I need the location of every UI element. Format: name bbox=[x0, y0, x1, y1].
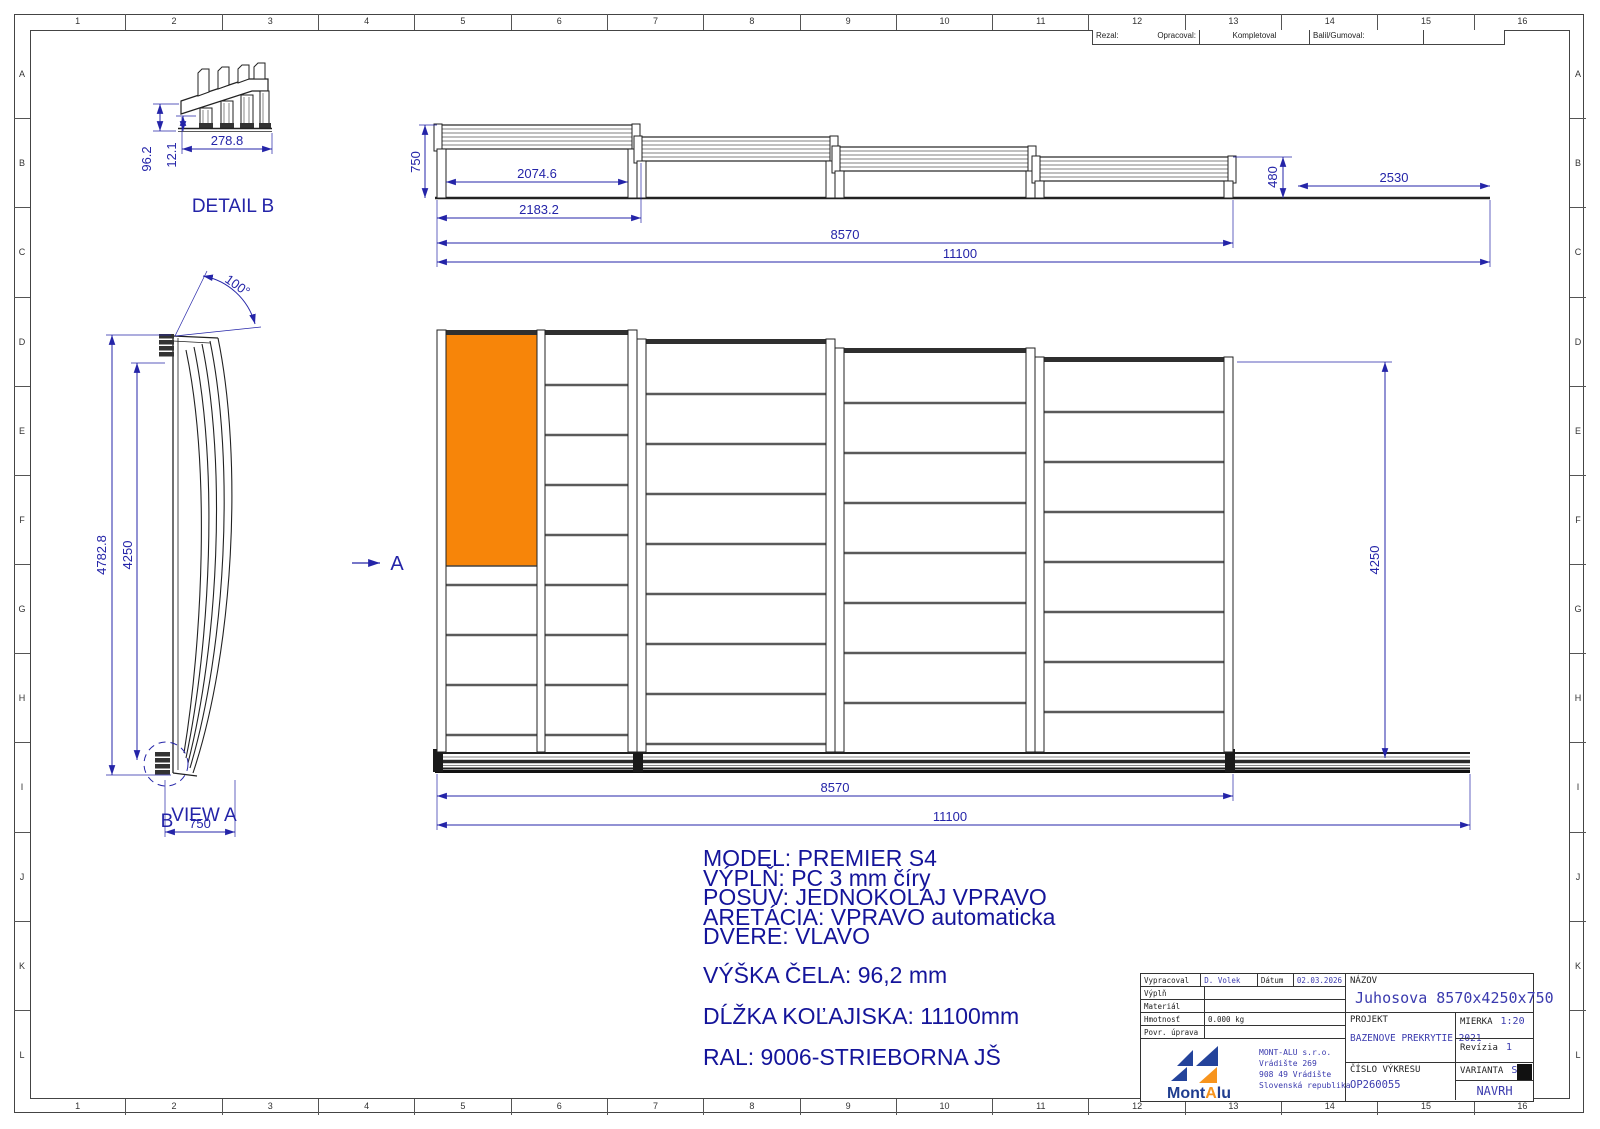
side-elevation-segments bbox=[434, 124, 1490, 198]
view-a-drawing: 100° 4782.8 4250 750 VIEW A B bbox=[85, 265, 325, 845]
grid-row-label: D bbox=[1570, 298, 1586, 387]
navrh-status: NAVRH bbox=[1456, 1081, 1533, 1100]
title-block-main: NÁZOV Juhosova 8570x4250x750 PROJEKT BAZ… bbox=[1346, 974, 1533, 1101]
spec-block-secondary: VÝŠKA ČELA: 96,2 mm DĹŽKA KOĽAJISKA: 111… bbox=[703, 955, 1019, 1078]
grid-col-label: 13 bbox=[1186, 14, 1282, 30]
grid-col-label: 6 bbox=[512, 14, 608, 30]
grid-col-label: 2 bbox=[126, 1099, 222, 1115]
grid-col-label: 12 bbox=[1089, 14, 1185, 30]
montalu-logo-icon bbox=[1169, 1046, 1225, 1086]
title-block-info-table: Vypracoval D. Volek Dátum 02.03.2026 Výp… bbox=[1141, 974, 1346, 1101]
grid-col-label: 3 bbox=[223, 1099, 319, 1115]
material-label: Materiál bbox=[1141, 1000, 1205, 1012]
vypln-label: Výplň bbox=[1141, 987, 1205, 999]
logo-part-mont: Mont bbox=[1167, 1085, 1205, 1102]
grid-row-label: D bbox=[14, 298, 30, 387]
drawing-title: Juhosova 8570x4250x750 bbox=[1355, 989, 1529, 1007]
mierka-value: 1:20 bbox=[1501, 1016, 1525, 1027]
grid-row-label: J bbox=[1570, 833, 1586, 922]
grid-row-label: F bbox=[14, 476, 30, 565]
section-marker-label: A bbox=[390, 553, 404, 575]
grid-row-label: G bbox=[14, 565, 30, 654]
detail-b-title: DETAIL B bbox=[192, 196, 274, 217]
grid-row-label: H bbox=[1570, 654, 1586, 743]
dim-4250-view: 4250 bbox=[120, 541, 135, 570]
grid-col-label: 8 bbox=[704, 1099, 800, 1115]
grid-row-label: A bbox=[14, 30, 30, 119]
grid-row-label: E bbox=[1570, 387, 1586, 476]
grid-row-label: G bbox=[1570, 565, 1586, 654]
projekt-label: PROJEKT bbox=[1350, 1015, 1451, 1025]
grid-col-label: 5 bbox=[415, 1099, 511, 1115]
company-address-line1: Vrádište 269 bbox=[1259, 1058, 1351, 1069]
grid-row-label: H bbox=[14, 654, 30, 743]
process-label-balil: Balil/Gumoval: bbox=[1310, 30, 1424, 45]
section-marker-a: A bbox=[352, 553, 404, 575]
grid-row-label: C bbox=[14, 208, 30, 297]
company-name: MONT-ALU s.r.o. bbox=[1259, 1047, 1351, 1058]
datum-value: 02.03.2026 bbox=[1294, 975, 1345, 986]
plan-segments bbox=[437, 330, 1233, 752]
dim-11100-plan: 11100 bbox=[933, 809, 967, 824]
grid-letters-left: ABCDEFGHIJKL bbox=[14, 30, 30, 1099]
company-address: MONT-ALU s.r.o. Vrádište 269 908 49 Vrád… bbox=[1259, 1047, 1351, 1091]
dim-2074: 2074.6 bbox=[517, 166, 557, 181]
datum-label: Dátum bbox=[1258, 974, 1294, 986]
grid-col-label: 9 bbox=[801, 14, 897, 30]
plan-rails bbox=[433, 749, 1470, 772]
grid-letters-right: ABCDEFGHIJKL bbox=[1570, 30, 1586, 1099]
grid-row-label: I bbox=[1570, 743, 1586, 832]
row-povrch: Povr. úprava bbox=[1141, 1026, 1345, 1039]
door-panel bbox=[446, 335, 537, 566]
spec-dvere: DVERE: VLAVO bbox=[703, 927, 1055, 947]
logo-part-lu: lu bbox=[1217, 1085, 1231, 1102]
grid-col-label: 3 bbox=[223, 14, 319, 30]
nazov-label: NÁZOV bbox=[1350, 976, 1529, 986]
dim-11100-top: 11100 bbox=[943, 246, 977, 261]
spec-block-main: MODEL: PREMIER S4 VÝPLŇ: PC 3 mm číry PO… bbox=[703, 849, 1055, 947]
grid-col-label: 6 bbox=[512, 1099, 608, 1115]
view-a-dimensions: 100° 4782.8 4250 750 bbox=[94, 271, 261, 837]
view-a-detail-marker: B bbox=[161, 811, 174, 832]
grid-col-label: 2 bbox=[126, 14, 222, 30]
process-cell-empty bbox=[1424, 30, 1505, 45]
projekt-box: PROJEKT BAZENOVE PREKRYTIE 2021 bbox=[1346, 1013, 1456, 1062]
cislo-label: ČÍSLO VÝKRESU bbox=[1350, 1065, 1451, 1075]
hmotnost-label: Hmotnosť bbox=[1141, 1013, 1205, 1025]
mierka-label: MIERKA bbox=[1460, 1017, 1493, 1027]
mierka-box: MIERKA 1:20 bbox=[1456, 1013, 1533, 1039]
grid-col-label: 10 bbox=[897, 1099, 993, 1115]
process-label-opracoval: Opracoval: bbox=[1157, 31, 1196, 43]
grid-col-label: 1 bbox=[30, 14, 126, 30]
spec-dlzka: DĹŽKA KOĽAJISKA: 11100mm bbox=[703, 996, 1019, 1037]
drawing-number: OP260055 bbox=[1350, 1079, 1451, 1091]
grid-row-label: L bbox=[14, 1011, 30, 1099]
row-vypln: Výplň bbox=[1141, 987, 1345, 1000]
view-a-arcs bbox=[144, 334, 232, 786]
row-vypracoval: Vypracoval D. Volek Dátum 02.03.2026 bbox=[1141, 974, 1345, 987]
grid-col-label: 7 bbox=[608, 14, 704, 30]
grid-col-label: 14 bbox=[1282, 14, 1378, 30]
cislo-vykresu-box: ČÍSLO VÝKRESU OP260055 bbox=[1346, 1063, 1456, 1100]
grid-col-label: 4 bbox=[319, 1099, 415, 1115]
grid-row-label: L bbox=[1570, 1011, 1586, 1099]
spec-vyska: VÝŠKA ČELA: 96,2 mm bbox=[703, 955, 1019, 996]
dim-8570-top: 8570 bbox=[831, 227, 860, 242]
title-block-marker-box bbox=[1517, 1064, 1532, 1080]
detail-b-dim-height: 96.2 bbox=[139, 146, 154, 171]
logo-part-a: A bbox=[1205, 1085, 1217, 1102]
detail-b-dim-width: 278.8 bbox=[211, 133, 244, 148]
side-elevation-view: 750 2074.6 2183.2 8570 11100 480 2530 bbox=[400, 105, 1510, 275]
process-cell: Rezal: Opracoval: bbox=[1092, 30, 1200, 45]
spec-ral: RAL: 9006-STRIEBORNA JŠ bbox=[703, 1037, 1019, 1078]
povrch-label: Povr. úprava bbox=[1141, 1026, 1205, 1038]
detail-b-dim-offset: 12.1 bbox=[164, 142, 179, 167]
grid-row-label: B bbox=[1570, 119, 1586, 208]
vypracoval-value: D. Volek bbox=[1201, 974, 1258, 986]
grid-row-label: J bbox=[14, 833, 30, 922]
grid-row-label: I bbox=[14, 743, 30, 832]
company-logo-area: MontAlu MONT-ALU s.r.o. Vrádište 269 908… bbox=[1141, 1040, 1346, 1101]
projekt-value: BAZENOVE PREKRYTIE 2021 bbox=[1350, 1033, 1451, 1044]
dim-480: 480 bbox=[1265, 166, 1280, 188]
dim-4782: 4782.8 bbox=[94, 535, 109, 575]
row-hmotnost: Hmotnosť 0.000 kg bbox=[1141, 1013, 1345, 1026]
grid-col-label: 1 bbox=[30, 1099, 126, 1115]
process-label-rezal: Rezal: bbox=[1096, 31, 1119, 43]
grid-row-label: C bbox=[1570, 208, 1586, 297]
row-material: Materiál bbox=[1141, 1000, 1345, 1013]
grid-row-label: F bbox=[1570, 476, 1586, 565]
grid-row-label: B bbox=[14, 119, 30, 208]
process-label-kompletoval: Kompletoval bbox=[1200, 30, 1310, 45]
company-address-line2: 908 49 Vrádište bbox=[1259, 1069, 1351, 1080]
dim-4250-plan: 4250 bbox=[1367, 546, 1382, 575]
revizia-value: 1 bbox=[1506, 1042, 1512, 1053]
grid-row-label: A bbox=[1570, 30, 1586, 119]
dim-2530: 2530 bbox=[1380, 170, 1409, 185]
plan-view: A 4250 8570 11100 bbox=[340, 315, 1500, 840]
grid-col-label: 7 bbox=[608, 1099, 704, 1115]
dim-angle-100: 100° bbox=[222, 271, 253, 299]
grid-numbers-top: 12345678910111213141516 bbox=[30, 14, 1570, 30]
dim-2183: 2183.2 bbox=[519, 202, 559, 217]
grid-row-label: K bbox=[14, 922, 30, 1011]
grid-col-label: 11 bbox=[993, 1099, 1089, 1115]
hmotnost-value: 0.000 kg bbox=[1205, 1014, 1247, 1025]
grid-col-label: 8 bbox=[704, 14, 800, 30]
grid-col-label: 11 bbox=[993, 14, 1089, 30]
montalu-logo-text: MontAlu bbox=[1143, 1085, 1255, 1103]
drawing-sheet: 12345678910111213141516 1234567891011121… bbox=[0, 0, 1600, 1129]
grid-col-label: 5 bbox=[415, 14, 511, 30]
grid-row-label: E bbox=[14, 387, 30, 476]
grid-row-label: K bbox=[1570, 922, 1586, 1011]
process-strip: Rezal: Opracoval: Kompletoval Balil/Gumo… bbox=[1092, 30, 1505, 45]
grid-col-label: 16 bbox=[1475, 14, 1570, 30]
title-block: Vypracoval D. Volek Dátum 02.03.2026 Výp… bbox=[1140, 973, 1534, 1102]
detail-b-drawing: 278.8 96.2 12.1 DETAIL B bbox=[90, 55, 350, 225]
grid-col-label: 15 bbox=[1378, 14, 1474, 30]
grid-col-label: 4 bbox=[319, 14, 415, 30]
view-a-title: VIEW A bbox=[171, 805, 237, 826]
varianta-label: VARIANTA bbox=[1460, 1066, 1503, 1076]
revizia-label: Revízia bbox=[1460, 1043, 1498, 1053]
nazov-box: NÁZOV Juhosova 8570x4250x750 bbox=[1346, 974, 1533, 1013]
grid-col-label: 9 bbox=[801, 1099, 897, 1115]
vypracoval-label: Vypracoval bbox=[1141, 974, 1201, 986]
company-address-line3: Slovenská republika bbox=[1259, 1080, 1351, 1091]
dim-750: 750 bbox=[408, 151, 423, 173]
dim-8570-plan: 8570 bbox=[821, 780, 850, 795]
grid-col-label: 10 bbox=[897, 14, 993, 30]
detail-b-profile bbox=[178, 63, 272, 132]
revizia-box: Revízia 1 bbox=[1456, 1039, 1533, 1062]
